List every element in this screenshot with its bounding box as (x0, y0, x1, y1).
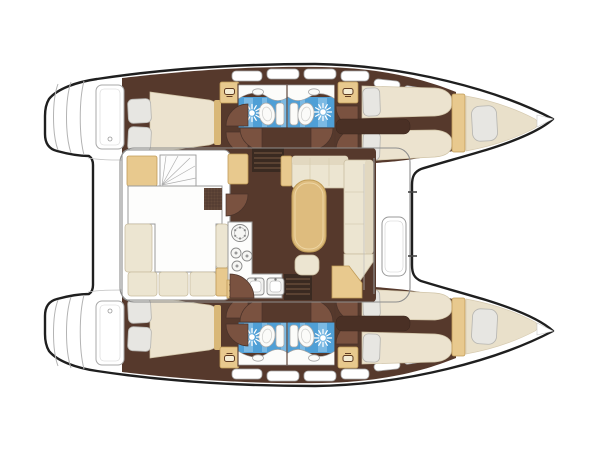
foredeck-hatch (382, 217, 406, 276)
companionway-steps-icon (284, 274, 312, 300)
dining-table (292, 180, 326, 252)
chart-seat (127, 156, 157, 186)
galley-cabinet (228, 154, 248, 184)
companionway-steps-icon (252, 148, 284, 172)
stair-fan-icon (160, 155, 196, 187)
catamaran-floor-plan (0, 0, 600, 450)
saloon (120, 148, 417, 302)
floor-plan-canvas (0, 0, 600, 450)
lounge-area (122, 150, 230, 300)
vent-grille (204, 188, 222, 210)
footstool (295, 255, 319, 275)
sofa-end-locker (281, 156, 292, 186)
